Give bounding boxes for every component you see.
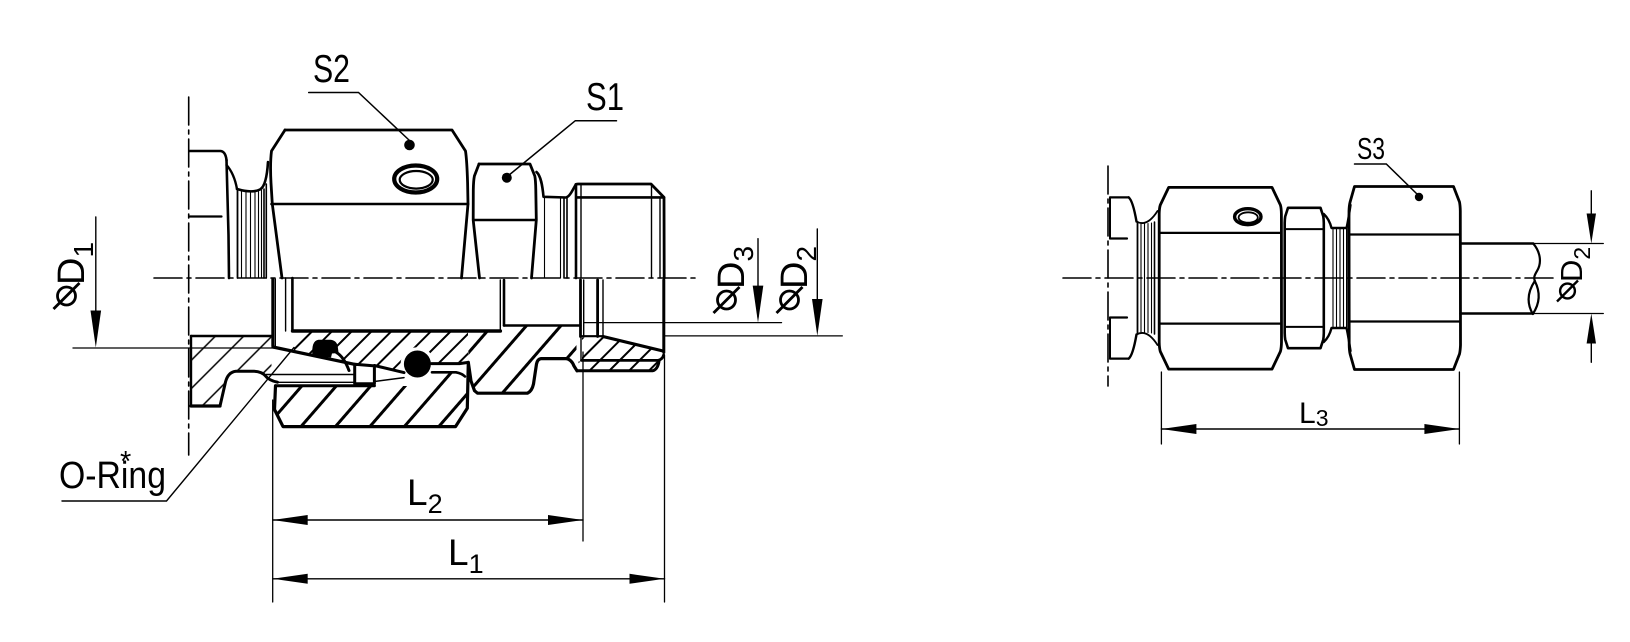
svg-text:S2: S2 — [313, 48, 350, 91]
svg-text:S1: S1 — [586, 76, 624, 119]
svg-text:O-Ring: O-Ring — [59, 455, 166, 497]
svg-text:S3: S3 — [1357, 131, 1385, 166]
